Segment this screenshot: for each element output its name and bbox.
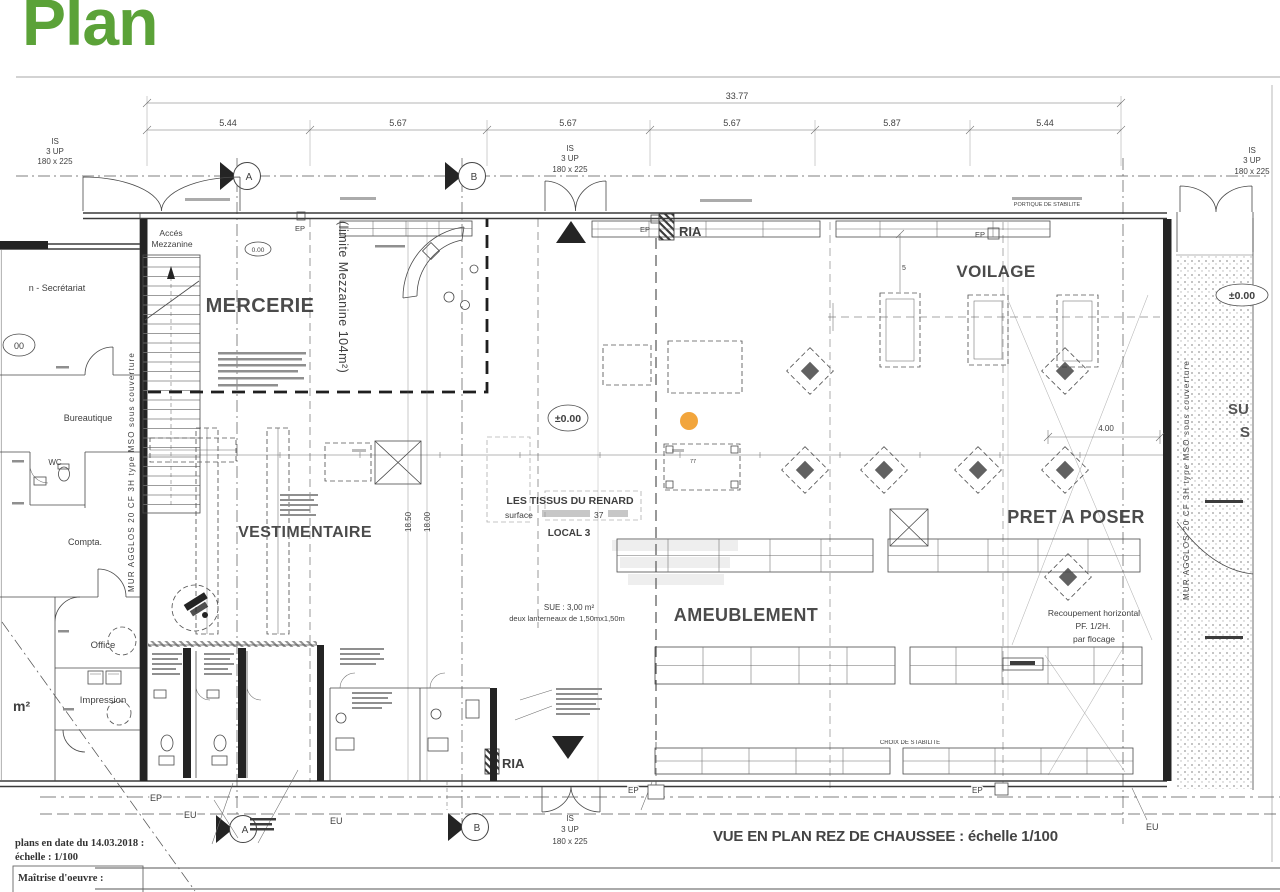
slide: Plan 33.77 5.44 5.67: [0, 0, 1280, 892]
exterior-stipple-zone: ±0.00 SU S: [1176, 218, 1268, 790]
caption-footer: VUE EN PLAN REZ DE CHAUSSEE : échelle 1/…: [13, 828, 1058, 892]
portique-note: PORTIQUE DE STABILITE: [1014, 202, 1081, 208]
mezzanine-stairs: Accés Mezzanine: [143, 228, 200, 513]
ep-label-bottom-center: EP: [628, 786, 639, 795]
dept-vestimentaire: VESTIMENTAIRE: [238, 524, 372, 541]
voilage-zone: VOILAGE 5 EP: [592, 221, 1160, 367]
level-center: ±0.00: [555, 413, 581, 425]
dim-seg-4: 5.67: [723, 118, 741, 128]
grid-marker-a-bottom: A: [242, 825, 249, 836]
grid-marker-b-top: B: [471, 172, 478, 183]
stair-tr-3: 180 x 225: [1234, 167, 1270, 176]
cut-label-su: SU: [1228, 401, 1249, 418]
ep-label-top-left: EP: [295, 224, 305, 233]
dept-mercerie: MERCERIE: [206, 295, 315, 317]
footer-date: plans en date du 14.03.2018 :: [15, 838, 144, 849]
ep-label-bottom-left: EP: [150, 793, 162, 803]
level-left: 00: [14, 341, 24, 351]
stair-tl-1: IS: [51, 137, 59, 146]
pret-a-poser-zone: PRET A POSER 4.00 Recoupement horizontal…: [1007, 295, 1164, 775]
dim-400: 4.00: [1098, 424, 1114, 433]
eu-label-bottom-left: EU: [184, 810, 197, 820]
stair-bc-1: IS: [566, 814, 574, 823]
level-right: ±0.00: [1229, 290, 1255, 302]
stair-tc-1: IS: [566, 144, 574, 153]
tenant-sue: SUE : 3,00 m²: [544, 603, 595, 612]
dim-five: 5: [902, 265, 906, 272]
dept-voilage: VOILAGE: [956, 262, 1035, 281]
footer-scale: échelle : 1/100: [15, 852, 78, 863]
tenant-name: LES TISSUS DU RENARD: [506, 495, 634, 507]
ria-icon-top: [659, 214, 674, 240]
eu-label-bottom-right: EU: [1146, 822, 1159, 832]
acces-mezzanine-line1: Accés: [159, 228, 182, 238]
stair-tc-2: 3 UP: [561, 154, 579, 163]
ria-label-bottom: RIA: [502, 756, 525, 771]
tenant-surface-value: 37: [594, 510, 604, 520]
room-impression: Impression: [80, 695, 126, 706]
central-zone: 77 RIA RIA EP ±0.00 LES TISSUS DU RENARD…: [485, 214, 742, 774]
display-diamonds: [782, 348, 1092, 601]
tenant-lanterneaux: deux lanterneaux de 1,50mx1,50m: [509, 614, 625, 623]
wall-note-left: MUR AGGLOS 20 CF 3H type MSO sous couver…: [127, 352, 136, 592]
dim-seg-6: 5.44: [1036, 118, 1054, 128]
click-marker-dot: [680, 412, 698, 430]
dim-77: 77: [690, 459, 696, 465]
room-compta: Compta.: [68, 537, 102, 547]
cut-label-s: S: [1240, 424, 1250, 441]
sanitary-block: [148, 641, 602, 810]
dim-overall: 33.77: [726, 91, 749, 101]
stair-tr-1: IS: [1248, 146, 1256, 155]
stairwell-labels: IS 3 UP 180 x 225 IS 3 UP 180 x 225 IS 3…: [37, 137, 1270, 846]
dim-seg-1: 5.44: [219, 118, 237, 128]
stair-doors: [83, 177, 1253, 812]
eu-label-bottom-mid: EU: [330, 816, 343, 826]
grid-marker-b-bottom: B: [474, 823, 481, 834]
tenant-surface-word: surface: [505, 510, 533, 520]
room-wc: WC: [48, 458, 62, 467]
plan-caption: VUE EN PLAN REZ DE CHAUSSEE : échelle 1/…: [713, 828, 1058, 845]
stair-tc-3: 180 x 225: [552, 165, 588, 174]
ep-label-bottom-right: EP: [972, 786, 983, 795]
room-office: Office: [91, 640, 116, 651]
room-bureautique: Bureautique: [64, 413, 113, 423]
stair-bc-2: 3 UP: [561, 825, 579, 834]
dim-seg-3: 5.67: [559, 118, 577, 128]
limite-mezzanine-note: (limite Mezzanine 104m²): [336, 221, 350, 373]
dim-1800: 18.00: [423, 511, 432, 532]
dept-pret-a-poser: PRET A POSER: [1007, 507, 1145, 527]
dim-seg-5: 5.87: [883, 118, 901, 128]
croix-stabilite-note: CROIX DE STABILITE: [880, 740, 940, 746]
floor-plan-drawing: 33.77 5.44 5.67 5.67 5.67 5.87 5.44 A: [0, 0, 1280, 892]
room-m2: m²: [13, 698, 30, 714]
stair-tl-3: 180 x 225: [37, 157, 73, 166]
stair-tl-2: 3 UP: [46, 147, 64, 156]
entrance-arrow-top: [556, 221, 586, 243]
dept-ameublement: AMEUBLEMENT: [674, 605, 818, 625]
stair-bc-3: 180 x 225: [552, 837, 588, 846]
level-mercerie: 0.00: [252, 247, 265, 254]
dim-seg-2: 5.67: [389, 118, 407, 128]
ep-label-voilage: EP: [975, 230, 985, 239]
entrance-arrow-bottom: [552, 736, 584, 759]
room-secretariat: n - Secrétariat: [29, 283, 86, 293]
recoupement-line1: Recoupement horizontal: [1048, 608, 1140, 618]
stair-tr-2: 3 UP: [1243, 156, 1261, 165]
recoupement-line3: par flocage: [1073, 634, 1115, 644]
recoupement-line2: PF. 1/2H.: [1076, 621, 1111, 631]
footer-moe: Maîtrise d'oeuvre :: [18, 873, 104, 884]
ep-label-top-center: EP: [640, 225, 650, 234]
acces-mezzanine-line2: Mezzanine: [151, 239, 192, 249]
dim-1850: 18.50: [404, 511, 413, 532]
top-dimension-chain: 33.77 5.44 5.67 5.67 5.67 5.87 5.44: [143, 91, 1125, 166]
grid-marker-a-top: A: [246, 172, 253, 183]
tenant-local: LOCAL 3: [548, 528, 591, 539]
